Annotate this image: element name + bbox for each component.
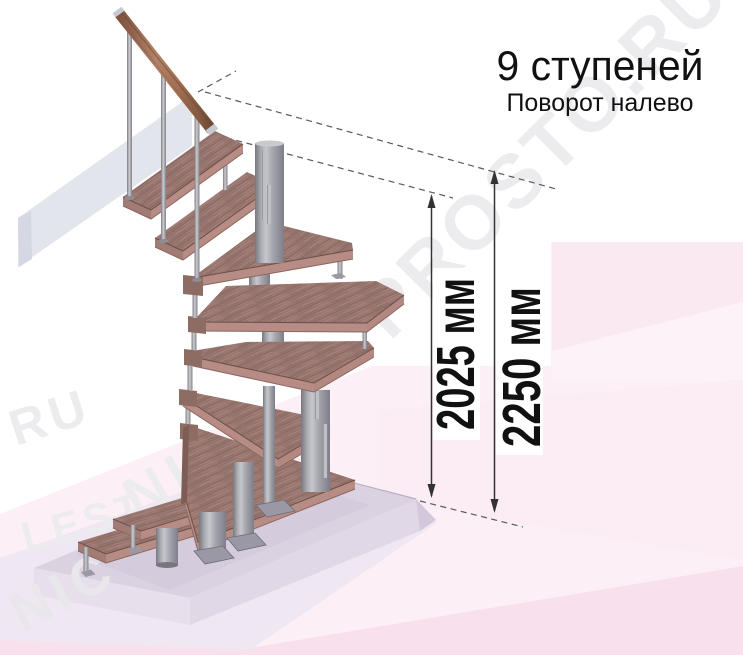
svg-text:Поворот налево: Поворот налево bbox=[507, 89, 694, 117]
svg-text:9 ступеней: 9 ступеней bbox=[497, 42, 704, 89]
svg-text:2250 мм: 2250 мм bbox=[492, 287, 552, 447]
svg-text:2025 мм: 2025 мм bbox=[426, 278, 486, 430]
